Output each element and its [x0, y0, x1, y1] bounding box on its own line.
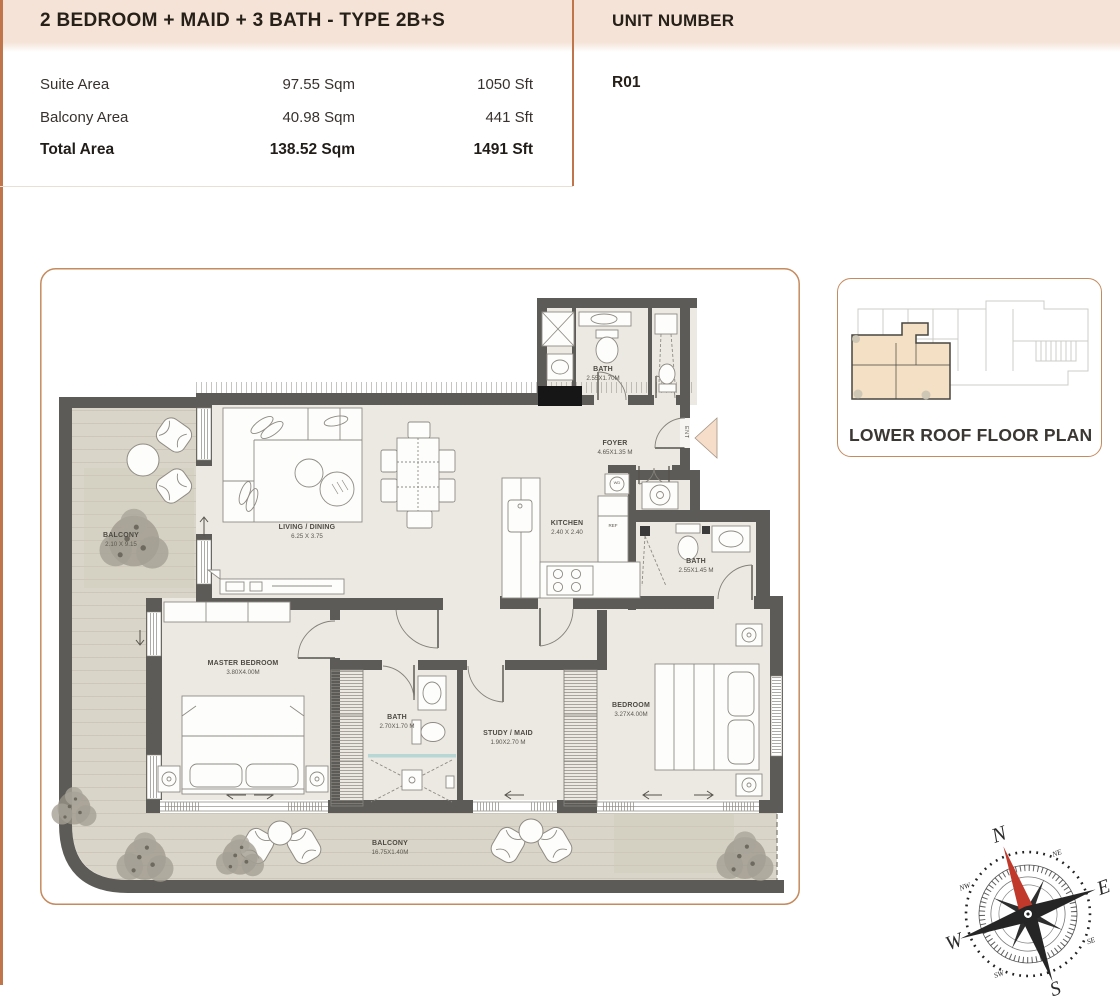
- area-row-balcony: Balcony Area 40.98 Sqm 441 Sft: [0, 109, 573, 131]
- header-underline: [0, 186, 573, 187]
- entrance-label: ENT: [683, 426, 689, 439]
- washer-label: WD: [605, 480, 629, 485]
- unit-number-label: UNIT NUMBER: [612, 0, 734, 42]
- unit-number-value: R01: [612, 74, 640, 92]
- area-row-suite: Suite Area 97.55 Sqm 1050 Sft: [0, 76, 573, 98]
- compass-north-label: N: [987, 824, 1010, 848]
- suite-area-sqm: 97.55 Sqm: [180, 76, 355, 93]
- key-plan-caption: LOWER ROOF FLOOR PLAN: [849, 425, 1100, 446]
- balcony-area-label: Balcony Area: [40, 109, 128, 126]
- compass-rose: N E S W NE SE SW NW: [942, 824, 1114, 996]
- balcony-area-sft: 441 Sft: [380, 109, 533, 126]
- header-band-fade: [0, 42, 1120, 52]
- area-row-total: Total Area 138.52 Sqm 1491 Sft: [0, 141, 573, 163]
- page-title: 2 BEDROOM + MAID + 3 BATH - TYPE 2B+S: [40, 0, 445, 42]
- suite-area-sft: 1050 Sft: [380, 76, 533, 93]
- compass-se-label: SE: [1085, 935, 1096, 946]
- compass-east-label: E: [1093, 875, 1113, 900]
- closet-washer: [642, 482, 678, 509]
- compass-west-label: W: [943, 928, 968, 955]
- coffee-table: [295, 459, 323, 487]
- fridge: [598, 496, 628, 562]
- floor-plan-panel: BALCONY 2.10 X 9.15 LIVING / DINING 6.25…: [14, 268, 800, 905]
- total-area-sft: 1491 Sft: [380, 141, 533, 159]
- total-area-sqm: 138.52 Sqm: [180, 141, 355, 159]
- top-laundry: [542, 312, 574, 380]
- coffee-table: [320, 472, 354, 506]
- compass-south-label: S: [1047, 977, 1064, 996]
- total-area-label: Total Area: [40, 141, 114, 159]
- suite-area-label: Suite Area: [40, 76, 109, 93]
- compass-sw-label: SW: [993, 968, 1006, 980]
- fridge-label: REF: [598, 523, 628, 528]
- balcony-area-sqm: 40.98 Sqm: [180, 109, 355, 126]
- compass-ne-label: NE: [1050, 847, 1063, 859]
- floor-plan-drawing: [14, 268, 800, 905]
